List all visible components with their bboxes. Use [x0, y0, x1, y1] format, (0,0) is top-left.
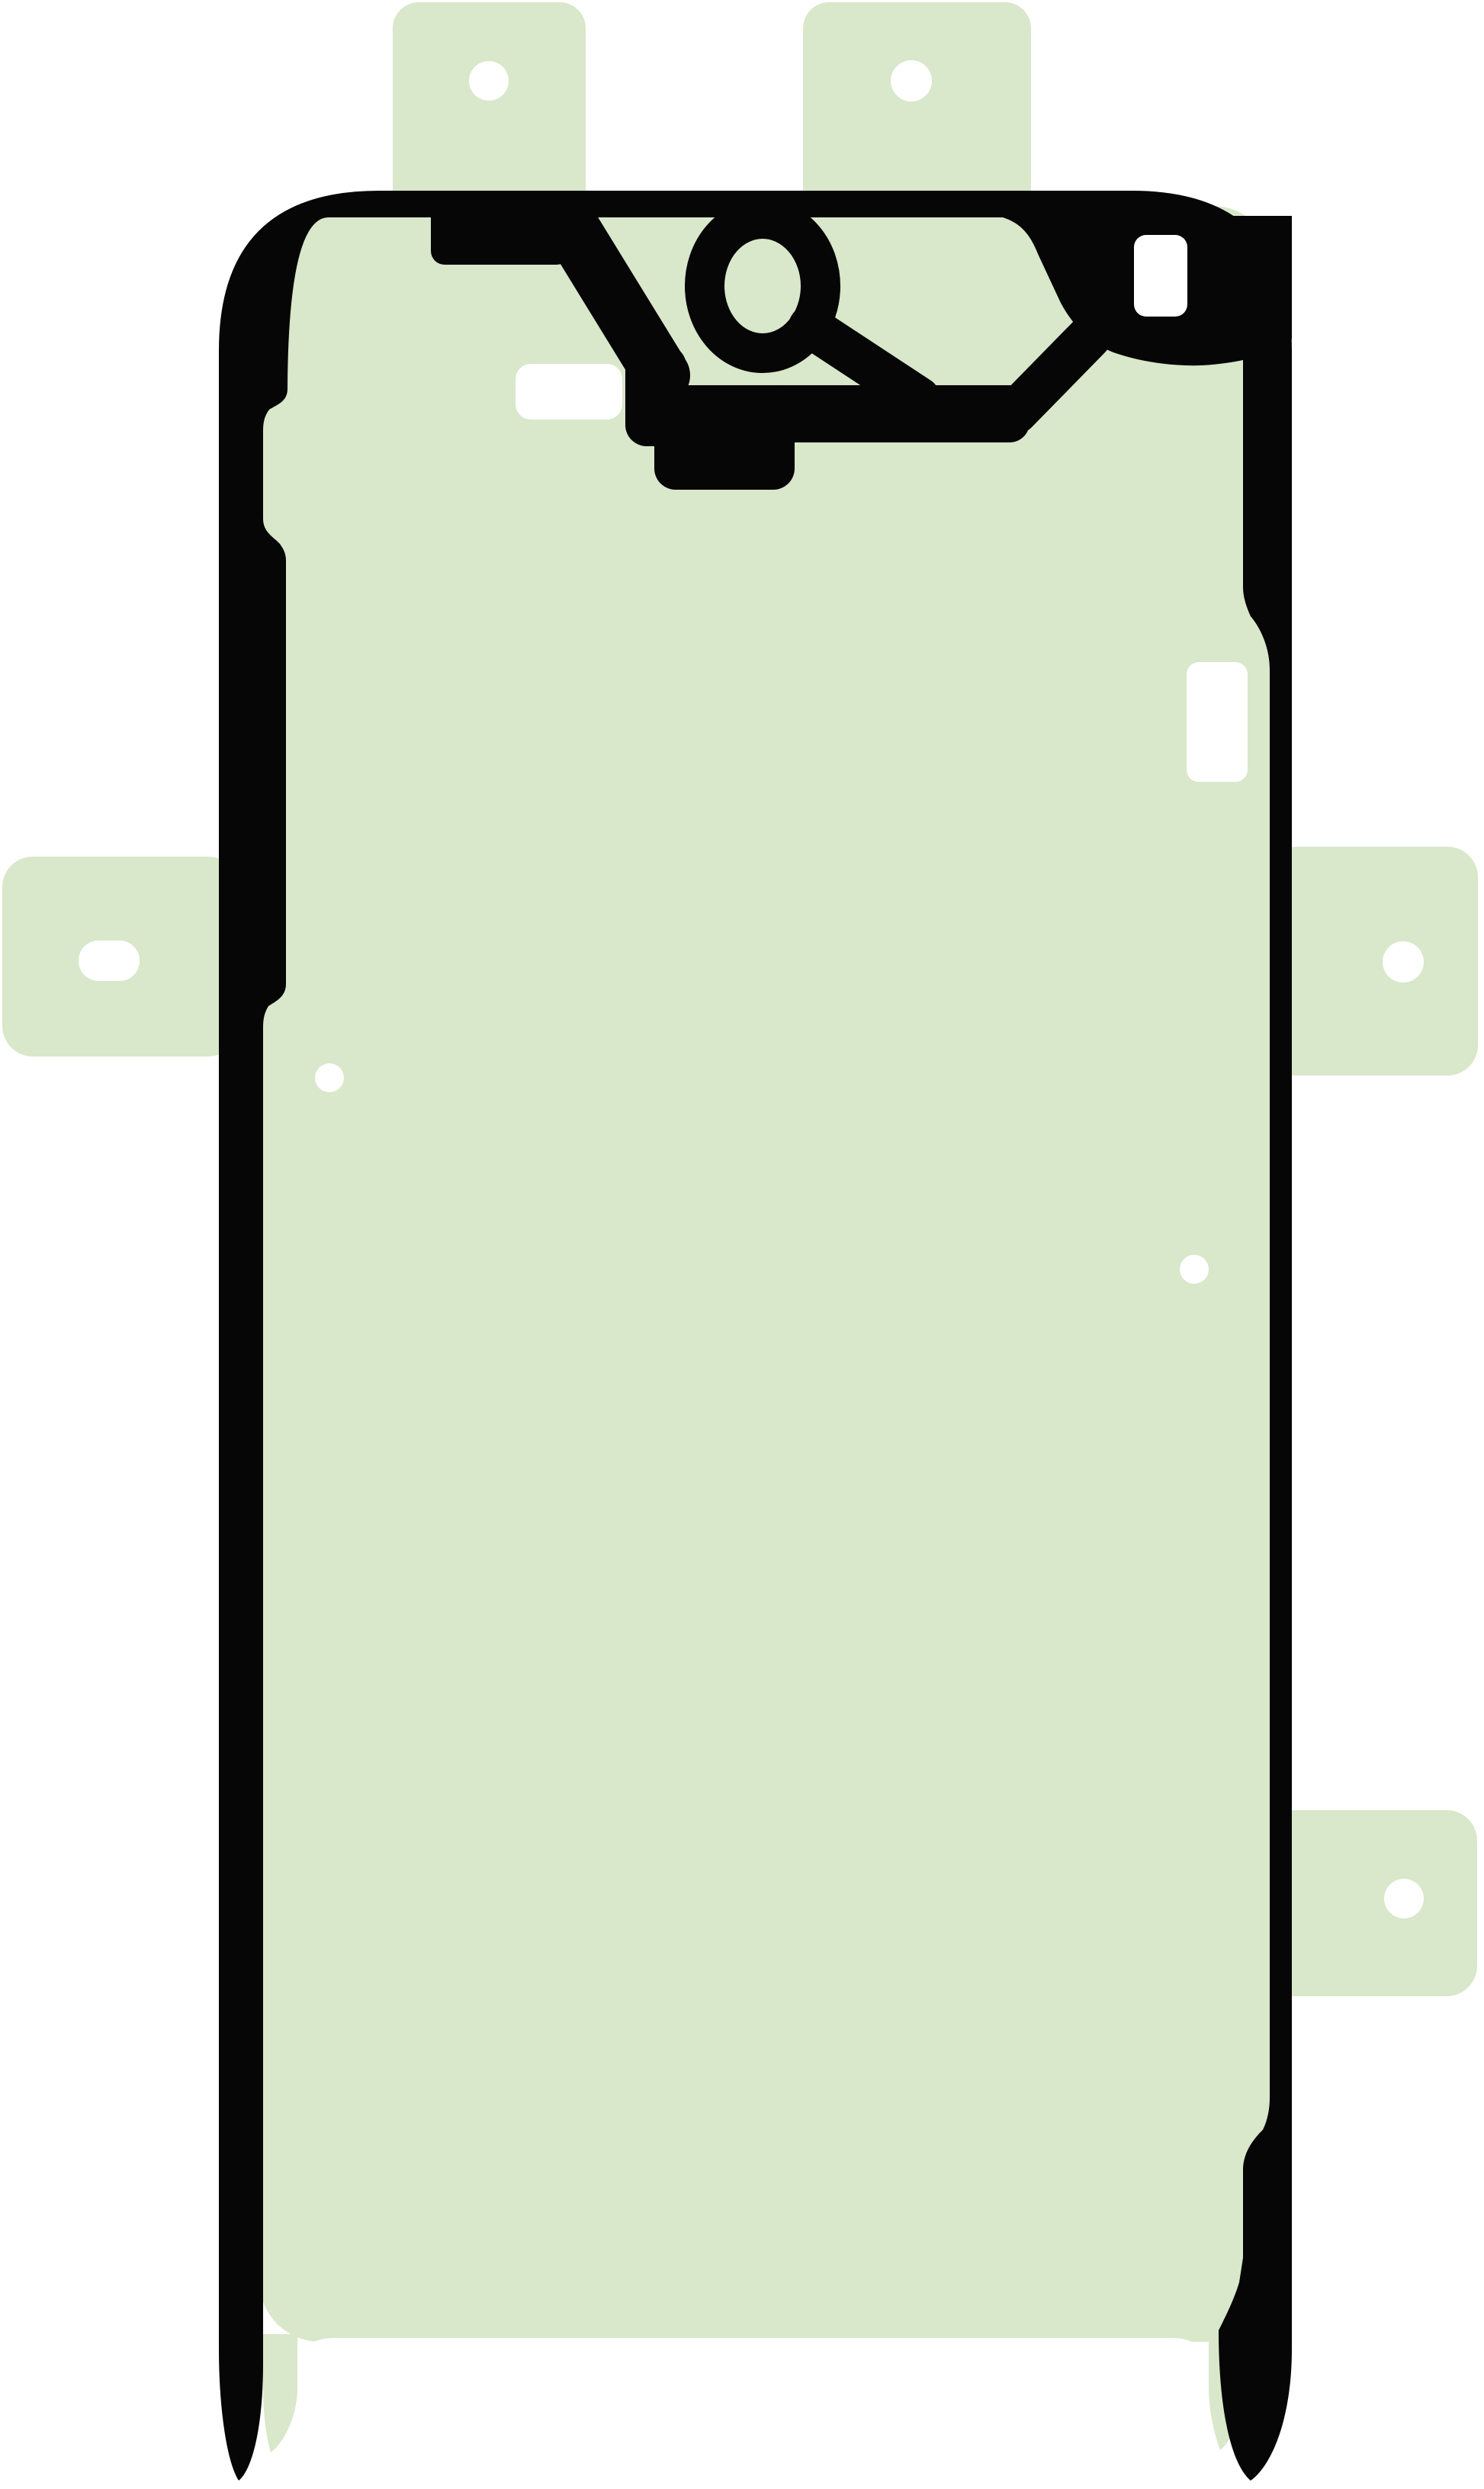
- bottom-sliver-left: [263, 2334, 297, 2452]
- product-image-canvas: [0, 0, 1484, 2489]
- bottom-cutout-bite: [297, 2338, 1209, 2489]
- side-tab-right-upper-hole: [1383, 941, 1424, 982]
- alignment-dot-left: [315, 1063, 344, 1092]
- alignment-dot-right: [1180, 1255, 1209, 1284]
- side-tab-right-upper: [1266, 847, 1478, 1076]
- side-tab-right-lower-hole: [1384, 1879, 1424, 1918]
- top-tab-right-hole: [891, 60, 932, 101]
- cutout-rect-top-right: [1134, 235, 1187, 317]
- adhesive-interior: [259, 206, 1274, 2342]
- top-tab-left-hole: [469, 61, 509, 101]
- cutout-rect-right-side: [1187, 662, 1248, 782]
- cutout-rect-top-left: [516, 364, 622, 420]
- adhesive-sheet-graphic: [0, 0, 1484, 2489]
- side-tab-left-slot: [79, 941, 140, 981]
- sensor-bar-step: [654, 385, 795, 490]
- side-tab-right-lower: [1266, 1810, 1477, 1996]
